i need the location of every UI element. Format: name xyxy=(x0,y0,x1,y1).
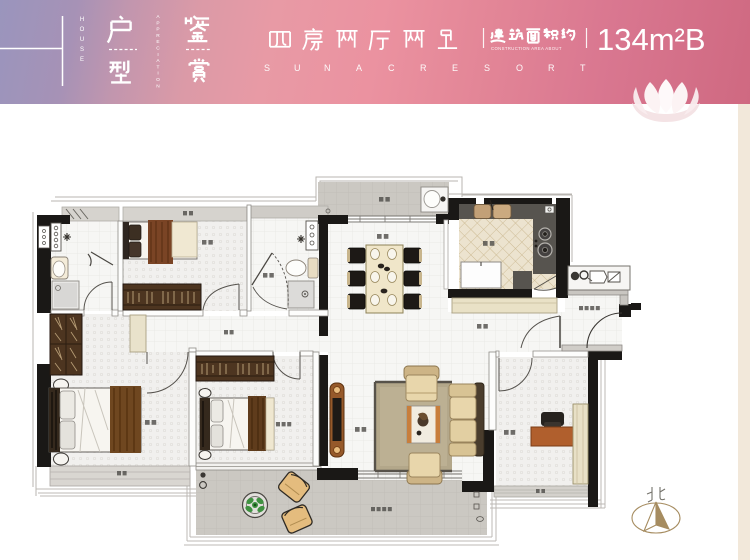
svg-text:I: I xyxy=(157,52,158,58)
svg-text:P: P xyxy=(156,20,159,26)
svg-text:U: U xyxy=(80,37,84,43)
svg-text:N: N xyxy=(324,63,331,73)
svg-text:CONSTRUCTION AREA ABOUT: CONSTRUCTION AREA ABOUT xyxy=(491,46,562,51)
svg-text:T: T xyxy=(157,64,160,70)
svg-text:N: N xyxy=(156,83,160,89)
svg-text:I: I xyxy=(157,71,158,77)
svg-text:R: R xyxy=(156,33,160,39)
svg-text:A: A xyxy=(156,14,160,20)
svg-text:T: T xyxy=(580,63,586,73)
svg-text:H: H xyxy=(80,17,84,23)
svg-text:R: R xyxy=(420,63,427,73)
svg-text:S: S xyxy=(80,47,84,53)
svg-text:A: A xyxy=(156,58,160,64)
svg-text:E: E xyxy=(80,57,84,63)
svg-text:O: O xyxy=(80,27,85,33)
svg-text:R: R xyxy=(548,63,555,73)
svg-text:134m²B: 134m²B xyxy=(597,22,706,57)
svg-text:U: U xyxy=(294,63,301,73)
svg-text:E: E xyxy=(156,39,159,45)
svg-text:C: C xyxy=(388,63,395,73)
svg-text:S: S xyxy=(484,63,490,73)
svg-text:O: O xyxy=(156,77,160,83)
svg-text:S: S xyxy=(264,63,270,73)
svg-text:E: E xyxy=(452,63,458,73)
svg-text:O: O xyxy=(516,63,523,73)
svg-text:A: A xyxy=(356,63,362,73)
svg-text:P: P xyxy=(156,27,159,33)
svg-text:C: C xyxy=(156,46,160,52)
